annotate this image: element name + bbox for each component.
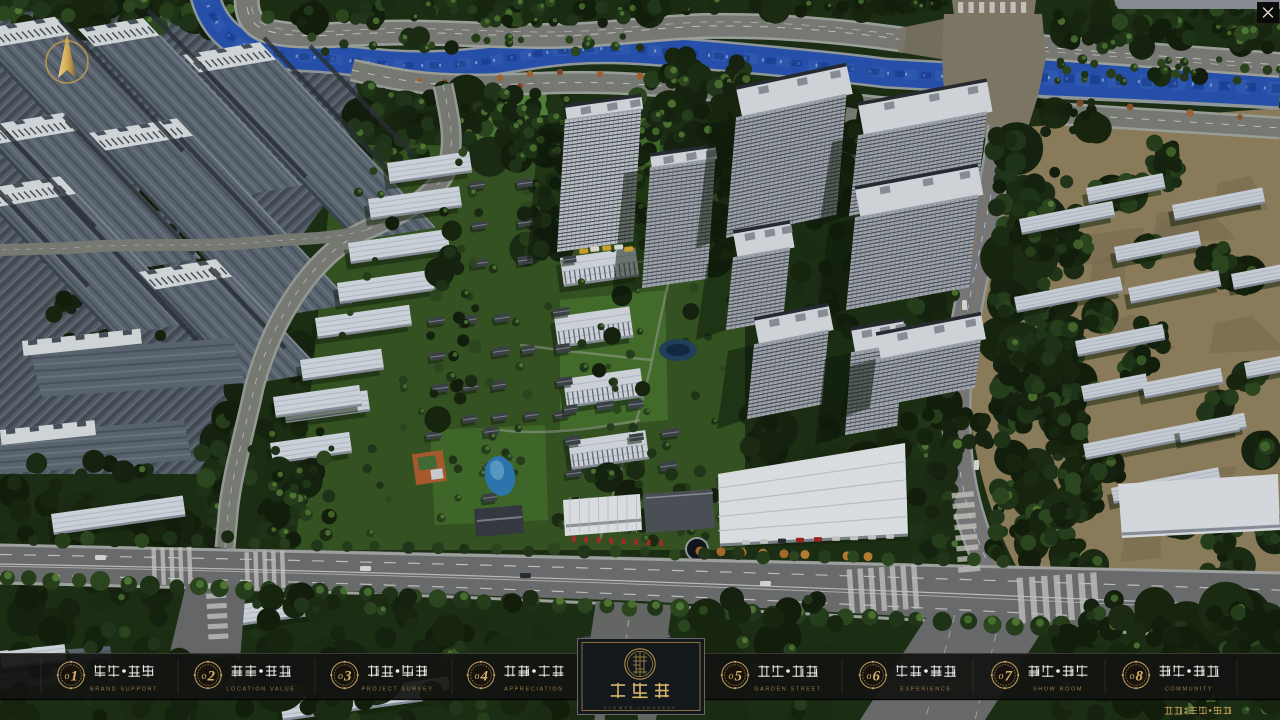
svg-text:4: 4 <box>480 669 489 685</box>
svg-text:o: o <box>999 671 1004 682</box>
svg-text:o: o <box>867 671 872 682</box>
svg-text:8: 8 <box>1136 669 1144 685</box>
svg-text:EXPERIENCE: EXPERIENCE <box>900 687 951 693</box>
svg-text:o: o <box>1130 671 1135 682</box>
svg-text:APPRECIATION: APPRECIATION <box>504 687 564 693</box>
svg-text:BRAND SUPPORT: BRAND SUPPORT <box>90 687 158 693</box>
svg-text:2: 2 <box>207 669 216 685</box>
svg-text:5: 5 <box>735 669 743 685</box>
svg-text:COMMUNITY: COMMUNITY <box>1165 687 1213 693</box>
svg-text:o: o <box>475 671 480 682</box>
svg-text:1: 1 <box>71 669 79 685</box>
svg-text:3: 3 <box>343 669 352 685</box>
svg-text:LOCATION VALUE: LOCATION VALUE <box>226 687 295 693</box>
svg-text:SHOW ROOM: SHOW ROOM <box>1033 687 1083 693</box>
svg-text:o: o <box>65 671 70 682</box>
svg-text:GARDEN STREET: GARDEN STREET <box>754 687 822 693</box>
svg-text:6: 6 <box>873 669 881 685</box>
svg-text:7: 7 <box>1005 669 1013 685</box>
svg-text:F L O W E R · L A N G U A G E: F L O W E R · L A N G U A G E <box>604 706 675 710</box>
svg-text:o: o <box>338 671 343 682</box>
svg-text:o: o <box>202 671 207 682</box>
svg-text:o: o <box>729 671 734 682</box>
svg-text:PROJECT SURVEY: PROJECT SURVEY <box>361 687 433 693</box>
